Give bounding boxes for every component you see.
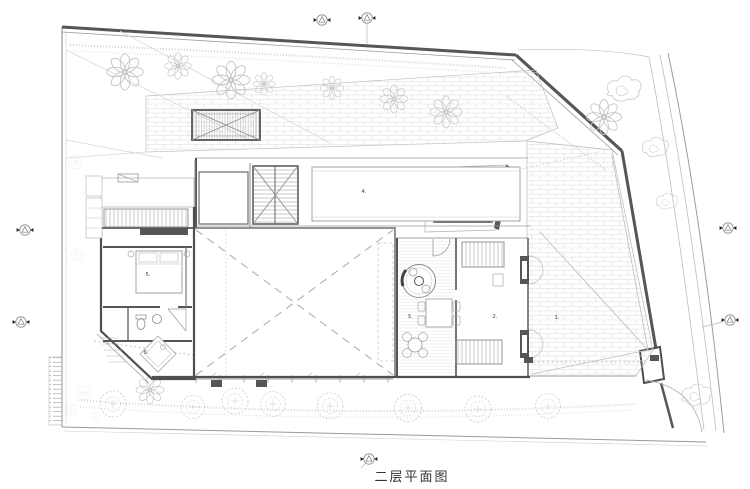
drawing-title: 二层平面图 xyxy=(374,470,449,485)
round-tree-icon xyxy=(65,404,77,416)
room-label-3: 3. xyxy=(407,314,412,320)
central-void xyxy=(194,228,395,383)
road-edge xyxy=(518,49,649,57)
axis-marker-icon xyxy=(722,315,739,325)
pier xyxy=(211,380,222,387)
round-tree-icon xyxy=(317,393,343,419)
bed xyxy=(136,251,182,293)
stair-upper xyxy=(462,242,504,267)
round-tree-icon xyxy=(394,394,421,421)
round-tree-icon xyxy=(100,391,126,417)
round-tree-icon xyxy=(261,392,286,417)
deciduous-tree-icon xyxy=(107,54,143,90)
round-tree-icon xyxy=(90,412,100,422)
axis-marker-icon xyxy=(17,225,34,235)
spiral-stair xyxy=(402,265,435,298)
room-label-5: 5. xyxy=(145,272,150,278)
room-label-4: 4. xyxy=(361,189,366,195)
cloud-tree-icon xyxy=(607,76,641,101)
floor-plan-sheet: 1. 2. 3. 4. 5. 6. 二层平面图 xyxy=(0,0,750,489)
stair-lower xyxy=(456,340,502,364)
round-tree-icon xyxy=(222,388,248,414)
deciduous-tree-icon xyxy=(165,53,192,80)
round-tree-icon xyxy=(78,387,91,400)
axis-marker-icon xyxy=(361,454,378,464)
room-label-1: 1. xyxy=(554,315,559,321)
pier xyxy=(524,357,533,363)
axis-marker-icon xyxy=(13,317,30,327)
shrub-band-bottom xyxy=(78,400,636,411)
axis-marker-icon xyxy=(720,223,737,233)
site-plan-drawing: 1. 2. 3. 4. 5. 6. 二层平面图 xyxy=(0,0,750,489)
bathroom xyxy=(103,307,192,341)
boundary-bottom xyxy=(62,427,706,442)
brick-terrace xyxy=(527,141,653,376)
cloud-tree-icon xyxy=(682,384,711,406)
room-label-6: 6. xyxy=(143,350,148,356)
round-tree-icon xyxy=(71,249,83,261)
main-stair xyxy=(253,166,298,224)
deciduous-tree-icon xyxy=(136,376,164,404)
cloud-tree-icon xyxy=(656,193,677,209)
pier xyxy=(256,380,267,387)
retaining-wall-hatch xyxy=(49,357,62,425)
shrub-band-top xyxy=(70,45,505,68)
site-wall-top xyxy=(62,27,516,55)
right-block xyxy=(397,238,543,377)
round-tree-icon xyxy=(465,396,491,422)
axis-marker-icon xyxy=(314,15,331,25)
axis-marker-icon xyxy=(359,13,376,23)
toilet xyxy=(137,319,145,330)
left-wing xyxy=(86,174,196,383)
service-room xyxy=(199,172,248,224)
basin xyxy=(153,315,162,324)
room-4-terrace xyxy=(312,167,520,221)
deciduous-tree-icon xyxy=(587,100,622,135)
exterior-steps xyxy=(86,176,102,238)
shower xyxy=(168,309,186,331)
wing-stair xyxy=(104,209,188,235)
skylight-1 xyxy=(192,110,260,140)
building: 1. 2. 3. 4. 5. 6. xyxy=(86,70,659,387)
pier xyxy=(650,355,659,361)
room-label-2: 2. xyxy=(492,314,497,320)
